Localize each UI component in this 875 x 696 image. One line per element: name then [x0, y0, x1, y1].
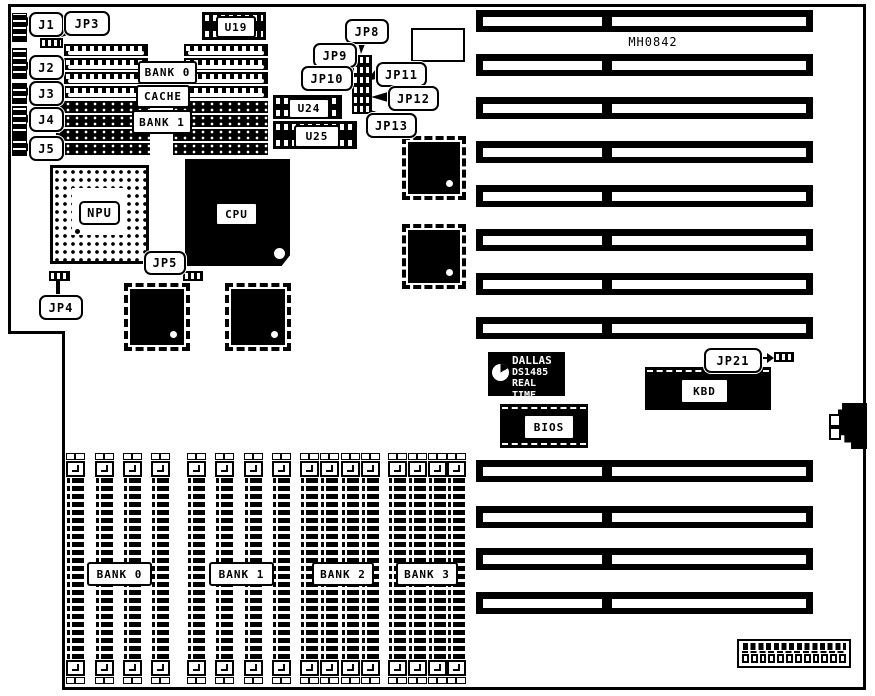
dip-ram-row [173, 143, 268, 155]
jumper-jp10 [352, 75, 372, 85]
isa-slot [476, 460, 813, 482]
label-simm-bank0: BANK 0 [87, 562, 152, 586]
label-jp9: JP9 [313, 43, 357, 68]
label-jp13: JP13 [366, 113, 417, 138]
label-j4: J4 [29, 107, 64, 132]
label-j5: J5 [29, 136, 64, 161]
jumper-jp5 [183, 271, 203, 281]
label-jp10: JP10 [301, 66, 353, 91]
rtc-brand: DALLAS [512, 355, 563, 367]
label-u25: U25 [294, 125, 340, 148]
connector-j5 [12, 135, 27, 156]
dip-ram-row [184, 86, 268, 98]
simm-slot [272, 453, 291, 684]
oscillator [411, 28, 465, 62]
power-connector-pins-bottom [742, 654, 846, 663]
isa-slot [476, 54, 813, 76]
isa-slot [476, 506, 813, 528]
dip-ram-row [184, 44, 268, 56]
label-jp5: JP5 [144, 251, 186, 275]
rtc-part-number: DS1485 [512, 367, 563, 378]
connector-j4 [12, 106, 27, 137]
label-jp21: JP21 [704, 348, 762, 373]
label-bank0-dip: BANK 0 [138, 61, 197, 84]
label-j2: J2 [29, 55, 64, 80]
label-jp11: JP11 [376, 62, 427, 87]
qfp-chip [225, 283, 291, 351]
label-jp3: JP3 [64, 11, 110, 36]
label-jp8: JP8 [345, 19, 389, 44]
label-cache: CACHE [136, 85, 190, 108]
chip-u24: U24 [273, 95, 342, 119]
simm-slot [151, 453, 170, 684]
motherboard-diagram: J1 J2 J3 J4 J5 JP3 U19 BANK 0 CACHE BANK… [0, 0, 875, 696]
isa-slot [476, 97, 813, 119]
qfp-chip [402, 136, 466, 200]
rtc-chip: DALLAS DS1485 REAL TIME [488, 352, 565, 396]
label-jp4: JP4 [39, 295, 83, 320]
label-j3: J3 [29, 81, 64, 106]
power-connector-pins-top [742, 643, 846, 650]
jumper-jp13 [352, 104, 372, 114]
isa-slot [476, 10, 813, 32]
keyboard-connector-pin [829, 414, 841, 427]
chip-u25: U25 [273, 121, 357, 149]
label-u19: U19 [216, 16, 256, 38]
label-simm-bank1: BANK 1 [209, 562, 274, 586]
label-u24: U24 [288, 98, 330, 119]
isa-slot [476, 229, 813, 251]
label-jp12: JP12 [388, 86, 439, 111]
label-bios: BIOS [523, 414, 575, 440]
chip-u19: U19 [202, 12, 266, 40]
cpu-pin1-dot [274, 248, 285, 259]
isa-slot [476, 273, 813, 295]
label-kbd: KBD [680, 378, 729, 404]
jumper-jp9 [352, 65, 372, 75]
jumper-jp11 [352, 85, 372, 95]
qfp-chip [402, 224, 466, 289]
dip-ram-row [64, 72, 148, 84]
clock-icon [492, 364, 509, 381]
board-model-label: MH0842 [608, 35, 698, 49]
label-j1: J1 [29, 12, 64, 37]
connector-j2 [12, 48, 27, 79]
jumper-jp21 [774, 352, 794, 362]
label-simm-bank3: BANK 3 [396, 562, 458, 586]
rtc-type: REAL TIME [512, 378, 563, 402]
dip-ram-row [64, 44, 148, 56]
connector-j1 [12, 13, 27, 42]
isa-slot [476, 185, 813, 207]
npu-pin1-dot [75, 229, 80, 234]
jumper-jp4 [49, 271, 70, 281]
power-connector-divider [742, 651, 846, 653]
isa-slot [476, 317, 813, 339]
label-npu: NPU [79, 201, 120, 225]
keyboard-connector-pin [829, 427, 841, 440]
isa-slot [476, 141, 813, 163]
power-connector [737, 639, 851, 668]
isa-slot [476, 548, 813, 570]
qfp-chip [124, 283, 190, 351]
isa-slot [476, 592, 813, 614]
jumper-jp3 [40, 38, 63, 48]
simm-slot [187, 453, 206, 684]
label-cpu: CPU [215, 202, 258, 226]
label-simm-bank2: BANK 2 [312, 562, 374, 586]
label-bank1-dip: BANK 1 [132, 110, 192, 134]
simm-slot [66, 453, 85, 684]
connector-j3 [12, 83, 27, 104]
dip-ram-row [64, 58, 148, 70]
dip-ram-row [56, 143, 150, 155]
